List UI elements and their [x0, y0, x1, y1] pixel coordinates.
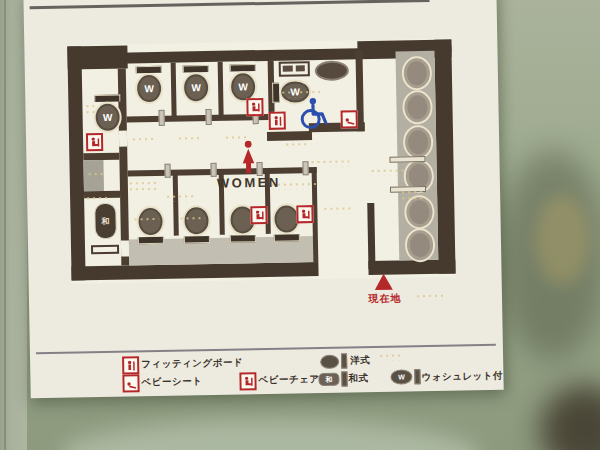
washlet-mark: W: [103, 112, 113, 122]
braille-dots: [87, 171, 105, 178]
baby-chair-icon: [250, 206, 267, 224]
changing-table: [279, 61, 310, 77]
woman-pictogram: [239, 140, 258, 178]
toilet-japanese-style: 和: [94, 203, 117, 239]
toilet-tank: [184, 236, 210, 243]
accessible-sink: [315, 60, 349, 81]
stall-partition: [173, 174, 179, 236]
braille-dots: [128, 180, 158, 191]
japanese-style-mark: 和: [101, 215, 109, 226]
braille-dots: [165, 193, 195, 202]
braille-dots: [131, 136, 157, 143]
washlet-mark: W: [144, 83, 154, 93]
braille-dots: [415, 293, 445, 302]
toilet-washlet: W: [93, 95, 122, 134]
stall-door: [165, 164, 171, 178]
japanese-toilet-icon: 和: [318, 371, 347, 387]
stall-door: [302, 161, 308, 175]
braille-dots: [270, 181, 316, 190]
braille-dots: [370, 167, 406, 176]
squat-step: [91, 245, 119, 255]
braille-dots: [400, 189, 426, 203]
wall-bottom-left: [71, 262, 318, 281]
stall-door: [210, 163, 216, 177]
legend-label-western-style: 洋式: [350, 354, 370, 367]
legend-label-fitting-board: フィッティングボード: [141, 356, 243, 371]
braille-dots: [224, 134, 250, 141]
braille-dots: [378, 352, 404, 360]
toilet-oval: [320, 354, 339, 368]
fitting-board-icon: [269, 112, 286, 130]
legend-label-japanese-style: 和式: [348, 372, 368, 385]
braille-dots: [178, 215, 204, 222]
wheelchair-icon: [298, 97, 329, 135]
baby-chair-icon: [296, 205, 313, 223]
baby-chair-icon: [239, 372, 256, 390]
toilet-oval: W: [390, 369, 412, 384]
toilet-washlet: W: [229, 64, 258, 103]
glass-reflection-lights: [535, 195, 590, 285]
toilet-tank-bar: [341, 371, 347, 386]
toilet-western: [136, 206, 165, 245]
japanese-style-mark: 和: [325, 376, 332, 383]
baby-sheet-icon: [122, 374, 139, 392]
baby-chair-icon: [86, 133, 103, 151]
changing-table-pad: [283, 65, 293, 71]
legend-label-baby-chair: ベビーチェア: [258, 373, 319, 387]
legend-label-baby-sheet: ベビーシート: [141, 375, 202, 389]
braille-dots: [280, 89, 320, 98]
braille-dots: [85, 195, 107, 202]
toilet-tank-bar: [414, 369, 420, 384]
legend-label-washlet: ウォシュレット付: [421, 370, 503, 384]
stall-partition: [171, 63, 177, 118]
glass-reflection-corner: [540, 385, 600, 450]
stall-door: [206, 109, 212, 125]
counter-shelf: [389, 156, 425, 163]
toilet-tank-bar: [341, 353, 347, 368]
left-stall-door-gap: [121, 240, 129, 256]
toilet-washlet: W: [135, 66, 164, 105]
toilet-tank: [274, 234, 300, 241]
toilet-tank: [138, 237, 164, 244]
braille-dots: [322, 205, 352, 214]
panel-top-edge: [30, 0, 430, 9]
toilet-washlet: W: [182, 65, 211, 104]
toilet-tank: [230, 235, 256, 242]
wall-seam-line: [4, 0, 6, 450]
braille-dots: [84, 103, 94, 117]
braille-dots: [132, 216, 158, 223]
wall-entrance-l: [367, 203, 375, 269]
baby-sheet-icon: [341, 110, 358, 128]
washlet-icon: W: [390, 369, 420, 385]
you-are-here-arrow: [375, 274, 393, 290]
washlet-mark: W: [238, 82, 248, 92]
glass-reflection-bottom: [60, 420, 480, 450]
changing-table-pad: [296, 65, 305, 71]
stall-partition: [218, 62, 224, 117]
floor-plan: W 和 W W W: [67, 39, 455, 284]
braille-dots: [284, 141, 310, 148]
toilet-western: [182, 205, 211, 244]
toilet-bowl: W: [93, 102, 122, 134]
toilet-bowl: W: [135, 73, 164, 105]
toilet-bowl: W: [182, 72, 211, 104]
braille-dots: [177, 135, 203, 142]
fitting-board-icon: [122, 356, 139, 374]
legend-separator: [36, 344, 496, 354]
baby-chair-icon: [246, 98, 263, 116]
restroom-map-sign-panel: W 和 W W W: [23, 0, 503, 398]
stall-door: [159, 110, 165, 126]
left-stall-door-gap: [119, 130, 127, 146]
braille-dots: [309, 158, 349, 167]
washlet-mark: W: [398, 373, 405, 380]
wall-left-strip: [0, 0, 27, 450]
photo-of-restroom-map: { "sign": { "map": { "area_label": "WOME…: [0, 0, 600, 450]
you-are-here-label: 現在地: [359, 291, 411, 306]
washlet-mark: W: [191, 83, 201, 93]
western-toilet-icon: [320, 353, 347, 368]
toilet-capsule: 和: [318, 373, 339, 386]
